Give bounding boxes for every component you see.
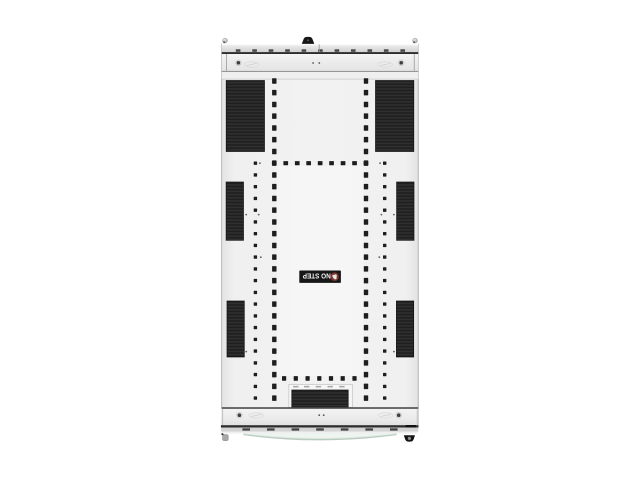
svg-text:NO STEP: NO STEP bbox=[303, 272, 331, 281]
